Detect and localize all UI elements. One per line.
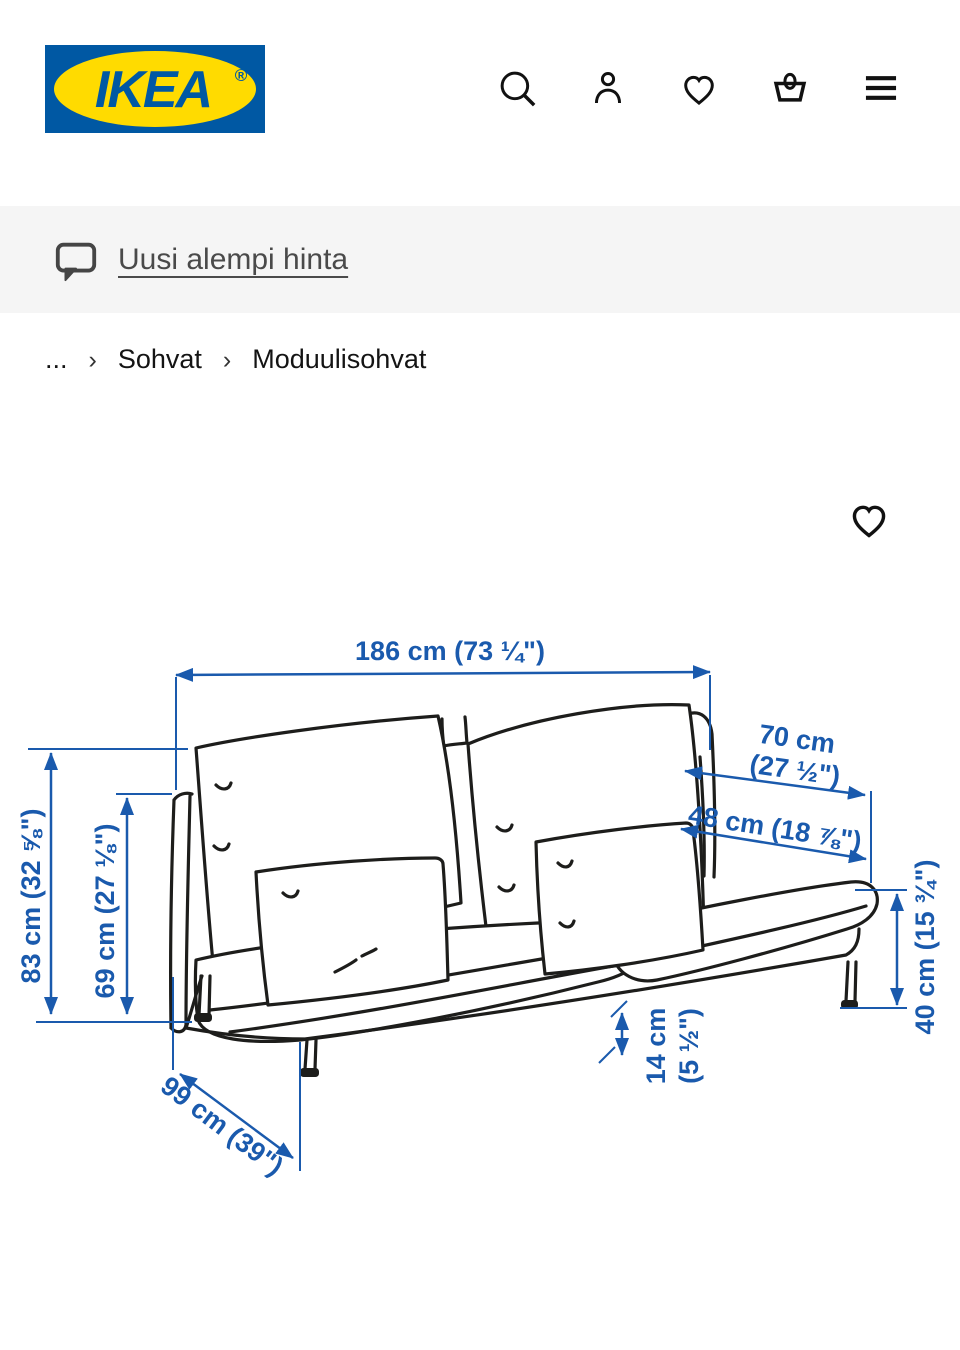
promo-banner: Uusi alempi hinta [0, 206, 960, 313]
breadcrumb: ... › Sohvat › Moduulisohvat [45, 344, 426, 375]
breadcrumb-ellipsis[interactable]: ... [45, 344, 68, 375]
registered-mark: ® [235, 66, 248, 85]
heart-icon [678, 67, 720, 109]
site-header: IKEA ® [0, 0, 960, 206]
breadcrumb-item-moduulisohvat[interactable]: Moduulisohvat [252, 344, 426, 375]
lower-price-link[interactable]: Uusi alempi hinta [118, 243, 348, 277]
menu-button[interactable] [859, 64, 903, 112]
wishlist-button[interactable] [677, 64, 721, 112]
heart-icon [846, 496, 892, 542]
product-dimension-illustration: 186 cm (73 ¼") 83 cm (32 ⅝") 69 cm (27 ⅛… [0, 640, 960, 1210]
search-icon [496, 67, 538, 109]
header-icon-bar [495, 64, 903, 112]
profile-button[interactable] [586, 64, 630, 112]
breadcrumb-separator: › [223, 345, 231, 375]
ikea-logo-graphic: IKEA ® [45, 45, 265, 133]
dim-total-width-label: 186 cm (73 ¼") [355, 640, 545, 666]
profile-icon [587, 67, 629, 109]
ikea-logo-text: IKEA [95, 61, 211, 119]
dim-clearance-in-label: (5 ½") [674, 1008, 704, 1084]
shopping-bag-icon [769, 67, 811, 109]
speech-bubble-icon [53, 235, 99, 285]
dim-total-height-label: 83 cm (32 ⅝") [16, 809, 46, 984]
breadcrumb-item-sohvat[interactable]: Sohvat [118, 344, 202, 375]
dim-frame-height-label: 69 cm (27 ⅛") [90, 824, 120, 999]
dim-seat-height-label: 40 cm (15 ¾") [910, 860, 940, 1035]
search-button[interactable] [495, 64, 539, 112]
favorite-product-button[interactable] [845, 496, 893, 544]
dim-clearance-cm-label: 14 cm [641, 1008, 671, 1085]
breadcrumb-separator: › [89, 345, 97, 375]
cart-button[interactable] [768, 64, 812, 112]
dim-depth-label: 99 cm (39") [155, 1070, 289, 1181]
ikea-logo[interactable]: IKEA ® [45, 45, 265, 133]
dim-cushion-width-label: 48 cm (18 ⅞") [686, 800, 863, 857]
hamburger-menu-icon [860, 67, 902, 109]
